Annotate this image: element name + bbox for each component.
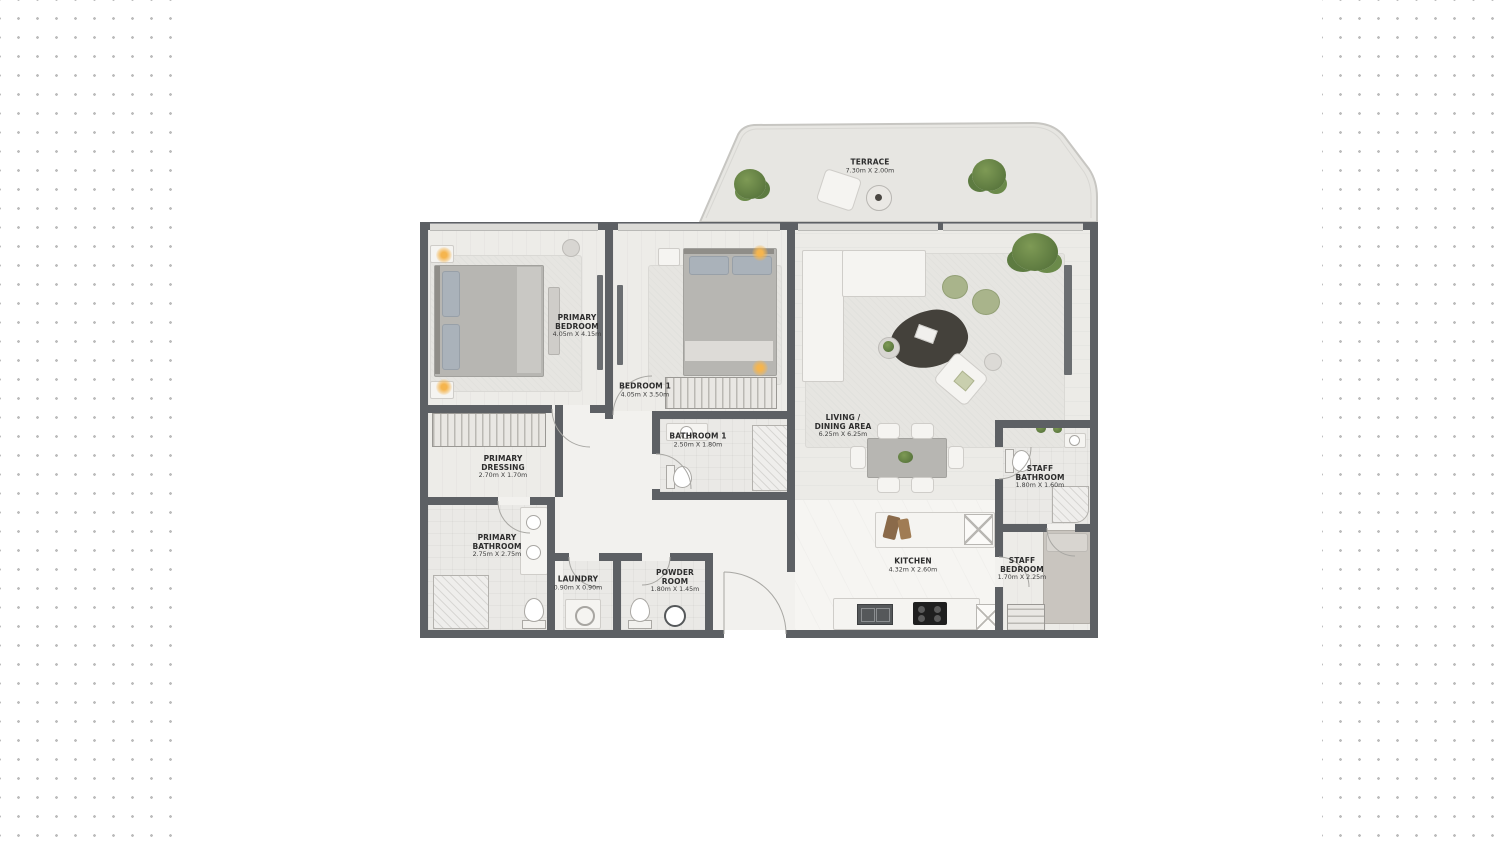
door-arc: [656, 454, 691, 489]
room-label-bedroom-1: BEDROOM 14.05m X 3.50m: [619, 382, 671, 399]
room-name: KITCHEN: [889, 557, 938, 566]
room-dims: 2.50m X 1.80m: [669, 441, 726, 450]
window: [943, 223, 1083, 231]
room-name: TERRACE: [846, 158, 895, 167]
room-name: STAFF BEDROOM: [998, 557, 1046, 574]
room-label-primary-bedroom: PRIMARY BEDROOM4.05m X 4.15m: [553, 314, 602, 340]
room-label-terrace: TERRACE7.30m X 2.00m: [846, 158, 895, 175]
room-name: LIVING / DINING AREA: [813, 414, 873, 431]
room-name: PRIMARY DRESSING: [477, 455, 529, 472]
room-label-bathroom-1: BATHROOM 12.50m X 1.80m: [669, 432, 726, 449]
room-name: POWDER ROOM: [653, 569, 697, 586]
room-dims: 2.70m X 1.70m: [477, 472, 529, 481]
window: [798, 223, 938, 231]
dot-grid-right: [1322, 0, 1500, 842]
dot-grid-left: [0, 0, 178, 842]
room-name: BATHROOM 1: [669, 432, 726, 441]
room-name: PRIMARY BEDROOM: [553, 314, 601, 331]
room-name: BEDROOM 1: [619, 382, 671, 391]
room-dims: 6.25m X 6.25m: [813, 431, 873, 440]
room-dims: 2.75m X 2.75m: [469, 551, 525, 560]
door-arc: [498, 501, 530, 533]
room-dims: 4.05m X 3.50m: [619, 391, 671, 400]
window: [430, 223, 598, 231]
room-label-primary-dressing: PRIMARY DRESSING2.70m X 1.70m: [477, 455, 529, 481]
room-label-staff-bathroom: STAFF BATHROOM1.80m X 1.60m: [1015, 465, 1065, 491]
room-dims: 4.05m X 4.15m: [553, 331, 602, 340]
door-arcs: [400, 115, 1100, 645]
entry-door-arc: [724, 572, 786, 634]
room-dims: 1.70m X 2.25m: [998, 574, 1047, 583]
window: [618, 223, 780, 231]
room-dims: 0.90m X 0.90m: [554, 584, 603, 593]
room-label-primary-bathroom: PRIMARY BATHROOM2.75m X 2.75m: [469, 534, 525, 560]
room-dims: 4.32m X 2.60m: [889, 566, 938, 575]
room-label-staff-bedroom: STAFF BEDROOM1.70m X 2.25m: [998, 557, 1047, 583]
room-label-powder-room: POWDER ROOM1.80m X 1.45m: [651, 569, 700, 595]
room-label-living-dining: LIVING / DINING AREA6.25m X 6.25m: [813, 414, 873, 440]
door-arc: [552, 409, 590, 447]
room-label-laundry: LAUNDRY0.90m X 0.90m: [554, 575, 603, 592]
floor-plan: TERRACE7.30m X 2.00m PRIMARY BEDROOM4.05…: [400, 115, 1100, 645]
room-name: STAFF BATHROOM: [1015, 465, 1065, 482]
room-dims: 1.80m X 1.45m: [651, 586, 700, 595]
room-name: PRIMARY BATHROOM: [469, 534, 525, 551]
room-name: LAUNDRY: [554, 575, 603, 584]
room-label-kitchen: KITCHEN4.32m X 2.60m: [889, 557, 938, 574]
door-arc: [1047, 528, 1075, 556]
room-dims: 1.80m X 1.60m: [1015, 482, 1065, 491]
room-dims: 7.30m X 2.00m: [846, 167, 895, 176]
